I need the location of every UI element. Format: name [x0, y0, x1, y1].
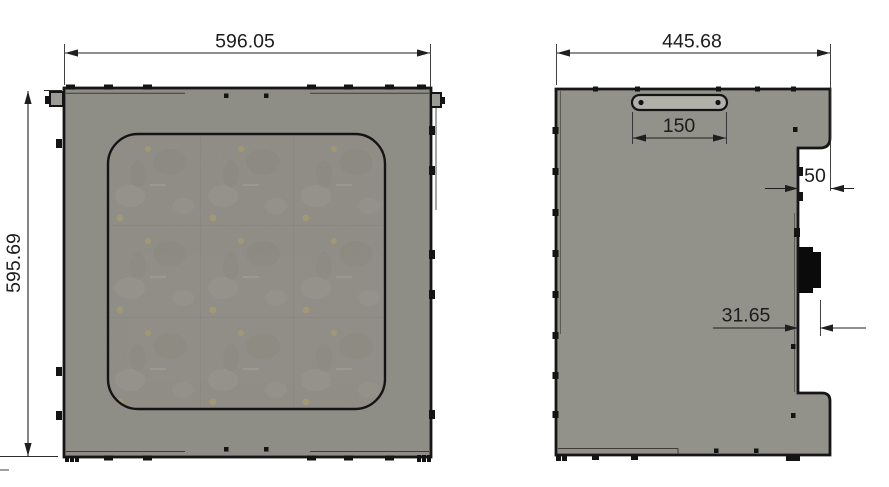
edge-tab [553, 332, 559, 339]
foot [417, 455, 421, 462]
corner-pin [45, 96, 50, 104]
dim-text-front-width[interactable]: 596.05 [215, 31, 275, 53]
rivet-dot [224, 94, 229, 99]
foot [786, 455, 800, 461]
rivet-dot [593, 87, 598, 92]
rivet-dot [264, 447, 269, 452]
rivet-dot [791, 413, 796, 418]
rivet-dot [714, 449, 719, 454]
edge-tab [385, 85, 394, 90]
front-corner-hardware-right [431, 93, 445, 107]
rivet-dot [791, 344, 796, 349]
handle-slot [632, 95, 727, 110]
dimension-front-height[interactable]: 595.69 [0, 91, 62, 471]
edge-tab [143, 85, 152, 90]
drawing-canvas: 596.05 595.69 445.68 150 50 [0, 0, 889, 487]
edge-tab [56, 367, 62, 376]
window-grain [108, 134, 385, 409]
dim-arrow-icon [557, 49, 570, 56]
cad-drawing-sheet: 596.05 595.69 445.68 150 50 [0, 0, 889, 487]
dim-arrow-icon [817, 49, 830, 56]
dimension-front-width[interactable]: 596.05 [65, 31, 431, 88]
dim-text-front-height[interactable]: 595.69 [3, 233, 25, 293]
front-view[interactable] [45, 85, 445, 463]
dim-arrow-icon [24, 91, 31, 104]
dim-text-side-width[interactable]: 445.68 [662, 31, 722, 53]
foot [562, 455, 567, 461]
dim-arrow-icon [831, 185, 844, 192]
rivet-dot [716, 87, 721, 92]
edge-tab [429, 410, 435, 419]
edge-tab [344, 456, 353, 461]
edge-tab [429, 250, 435, 259]
rivet-dot [754, 449, 759, 454]
rivet-dot [791, 87, 796, 92]
edge-tab [66, 85, 75, 90]
edge-tab [553, 209, 559, 216]
edge-tab [344, 85, 353, 90]
foot [70, 456, 74, 462]
edge-tab [429, 166, 435, 175]
edge-tab [631, 456, 638, 460]
corner-bracket [431, 93, 441, 107]
rivet-dot [264, 94, 269, 99]
handle[interactable] [632, 95, 727, 110]
foot [65, 456, 69, 462]
edge-tab [417, 85, 426, 90]
edge-tab [553, 372, 559, 379]
front-window[interactable] [108, 134, 385, 409]
dim-arrow-icon [24, 443, 31, 456]
edge-tab [797, 167, 803, 176]
edge-tab [797, 192, 803, 201]
dim-text-handle-width[interactable]: 150 [663, 115, 696, 137]
edge-tab [56, 139, 62, 148]
dim-arrow-icon [820, 324, 833, 331]
rivet-dot [224, 447, 229, 452]
edge-tab [385, 456, 394, 461]
edge-tab [794, 228, 800, 237]
edge-tab [553, 411, 559, 418]
edge-tab [553, 127, 559, 134]
dim-arrow-icon [65, 49, 78, 56]
edge-tab [553, 168, 559, 175]
edge-tab [429, 290, 435, 299]
rivet-dot [755, 87, 760, 92]
corner-pin [441, 97, 445, 104]
side-panel-body [556, 89, 830, 455]
edge-tab [307, 456, 316, 461]
front-corner-hardware-left [45, 92, 63, 106]
edge-tab [307, 85, 316, 90]
connector[interactable] [799, 247, 821, 293]
foot [75, 456, 79, 462]
edge-tab [553, 291, 559, 298]
edge-tab [104, 85, 113, 90]
handle-screw [638, 100, 643, 105]
rivet-dot [635, 87, 640, 92]
side-view[interactable] [553, 87, 831, 462]
corner-bracket [50, 92, 63, 106]
dim-text-notch-depth[interactable]: 50 [804, 165, 826, 187]
foot [556, 455, 561, 461]
dim-arrow-icon [417, 49, 430, 56]
foot [427, 455, 431, 462]
foot [422, 455, 426, 462]
rivet-dot [793, 127, 798, 132]
edge-tab [143, 456, 152, 461]
edge-tab [553, 250, 559, 257]
edge-tab [592, 456, 599, 460]
handle-screw [715, 100, 720, 105]
edge-tab [56, 411, 62, 420]
edge-tab [104, 456, 113, 461]
dim-text-connector-offset[interactable]: 31.65 [722, 305, 771, 327]
edge-tab [429, 126, 435, 135]
